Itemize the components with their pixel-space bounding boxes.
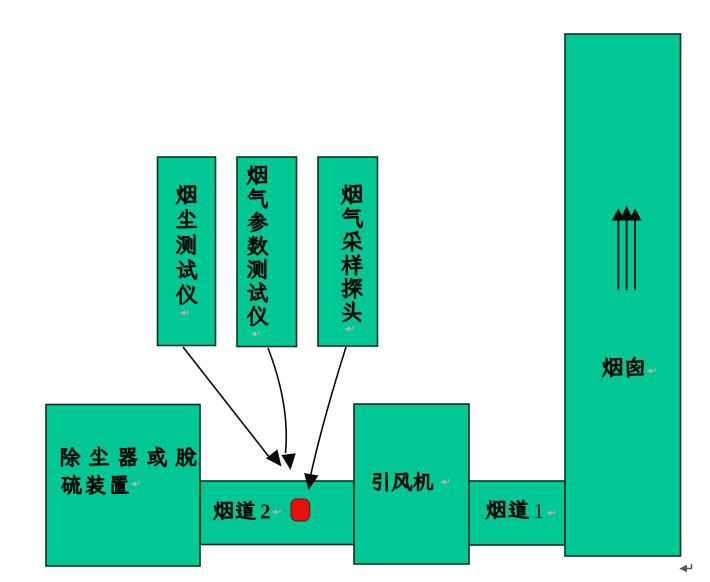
svg-text:1: 1 — [534, 499, 545, 523]
svg-text:2: 2 — [260, 500, 271, 524]
